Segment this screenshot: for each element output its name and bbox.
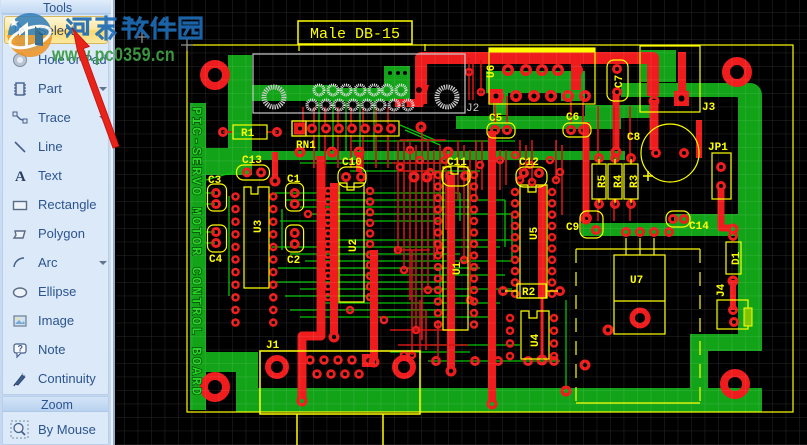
svg-text:?: ? (18, 344, 24, 354)
svg-text:A: A (15, 169, 26, 185)
